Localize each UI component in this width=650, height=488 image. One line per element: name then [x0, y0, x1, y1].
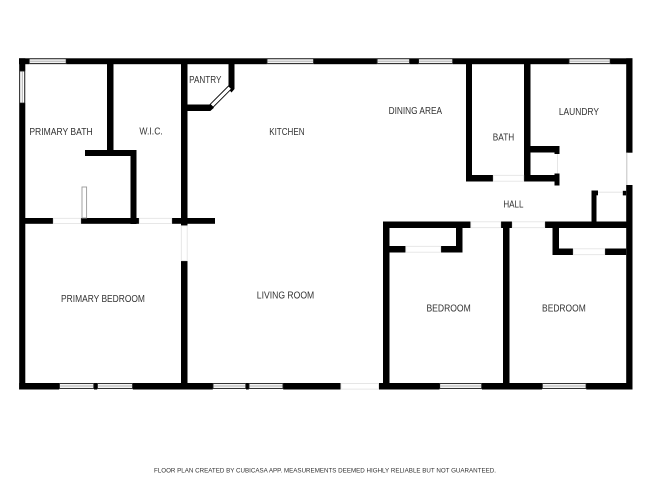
svg-text:PRIMARY BEDROOM: PRIMARY BEDROOM — [61, 294, 145, 305]
svg-text:KITCHEN: KITCHEN — [269, 127, 304, 138]
svg-text:DINING AREA: DINING AREA — [389, 106, 443, 117]
svg-text:BATH: BATH — [493, 133, 514, 144]
svg-text:PANTRY: PANTRY — [189, 75, 222, 86]
svg-text:LAUNDRY: LAUNDRY — [559, 107, 600, 118]
svg-text:W.I.C.: W.I.C. — [139, 126, 162, 137]
svg-text:BEDROOM: BEDROOM — [542, 304, 586, 315]
svg-text:FLOOR PLAN CREATED BY CUBICASA: FLOOR PLAN CREATED BY CUBICASA APP. MEAS… — [154, 468, 496, 475]
svg-text:BEDROOM: BEDROOM — [426, 304, 470, 315]
svg-text:PRIMARY BATH: PRIMARY BATH — [29, 127, 92, 138]
svg-text:HALL: HALL — [503, 200, 524, 211]
svg-text:LIVING ROOM: LIVING ROOM — [257, 290, 314, 301]
